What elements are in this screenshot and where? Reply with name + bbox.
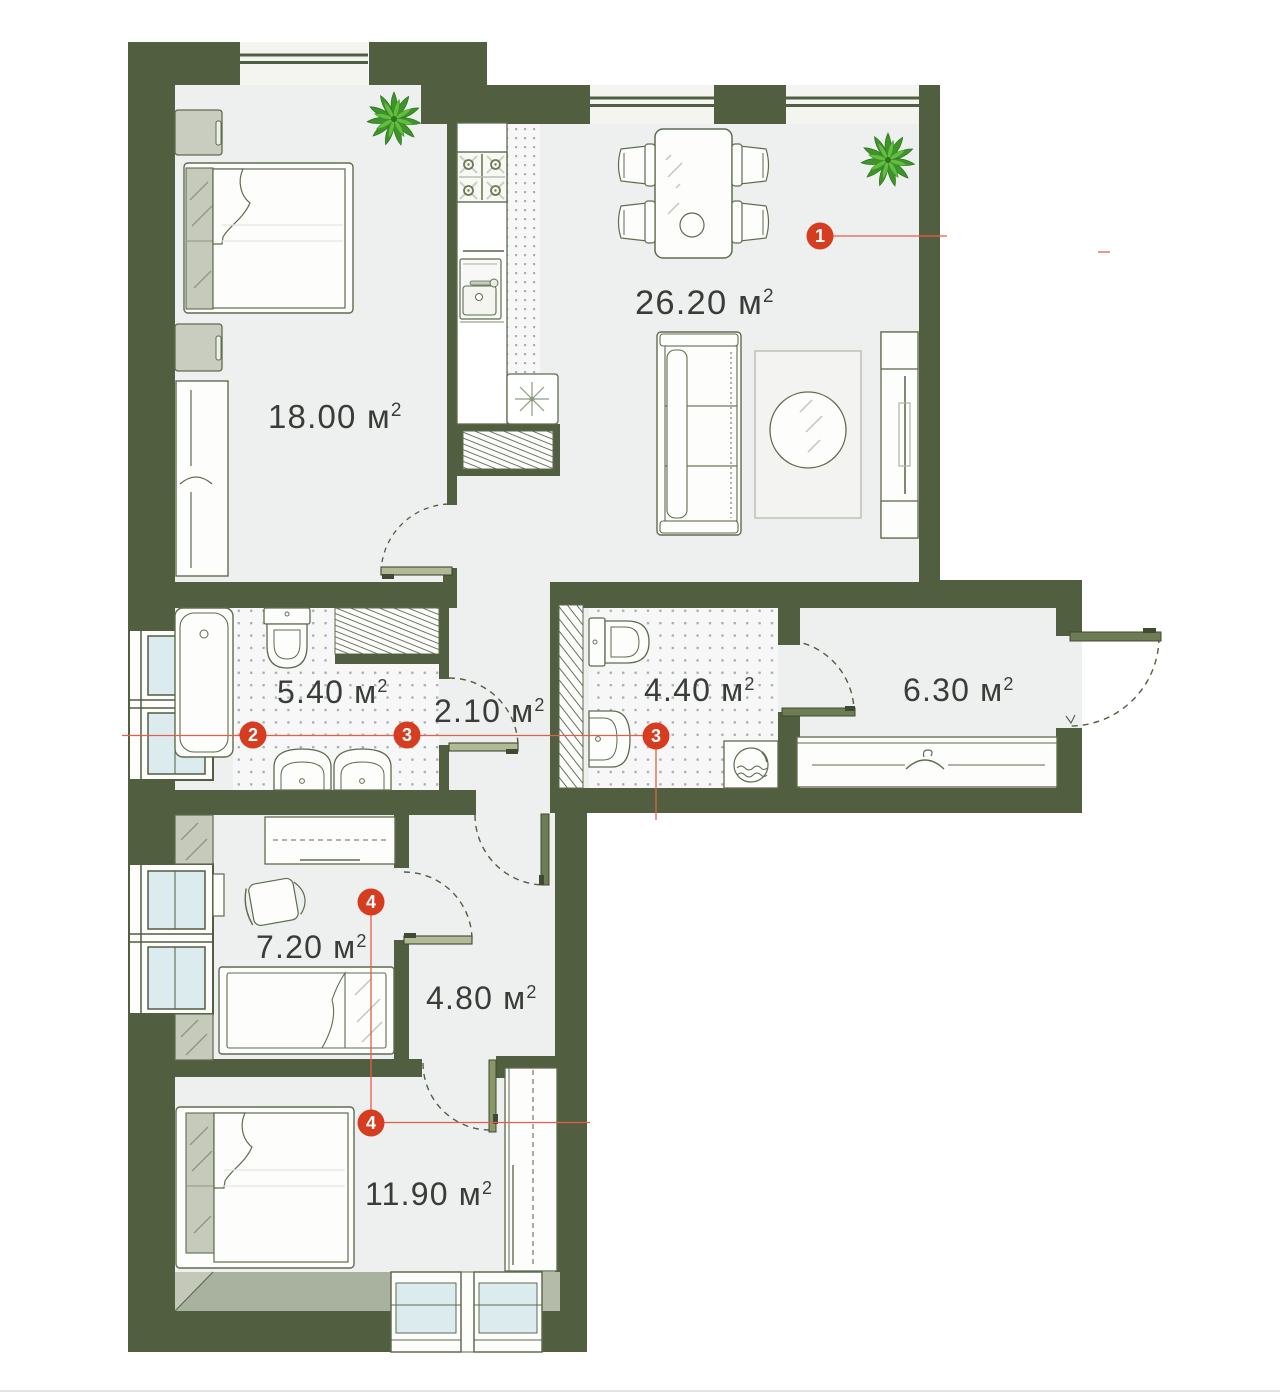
svg-text:3: 3	[402, 725, 412, 745]
svg-text:5.40 м2: 5.40 м2	[277, 674, 389, 710]
svg-text:1: 1	[815, 226, 825, 246]
svg-text:2.10 м2: 2.10 м2	[434, 693, 546, 729]
svg-text:26.20 м2: 26.20 м2	[635, 284, 775, 322]
svg-text:6.30 м2: 6.30 м2	[903, 672, 1015, 708]
svg-text:4: 4	[366, 1113, 376, 1133]
svg-text:4: 4	[366, 892, 376, 912]
svg-text:11.90 м2: 11.90 м2	[365, 1176, 493, 1212]
svg-text:3: 3	[651, 726, 661, 746]
svg-text:4.40 м2: 4.40 м2	[644, 672, 756, 708]
svg-text:2: 2	[248, 725, 258, 745]
svg-text:7.20 м2: 7.20 м2	[256, 929, 368, 965]
svg-text:18.00 м2: 18.00 м2	[268, 398, 403, 435]
svg-text:4.80 м2: 4.80 м2	[426, 980, 538, 1016]
